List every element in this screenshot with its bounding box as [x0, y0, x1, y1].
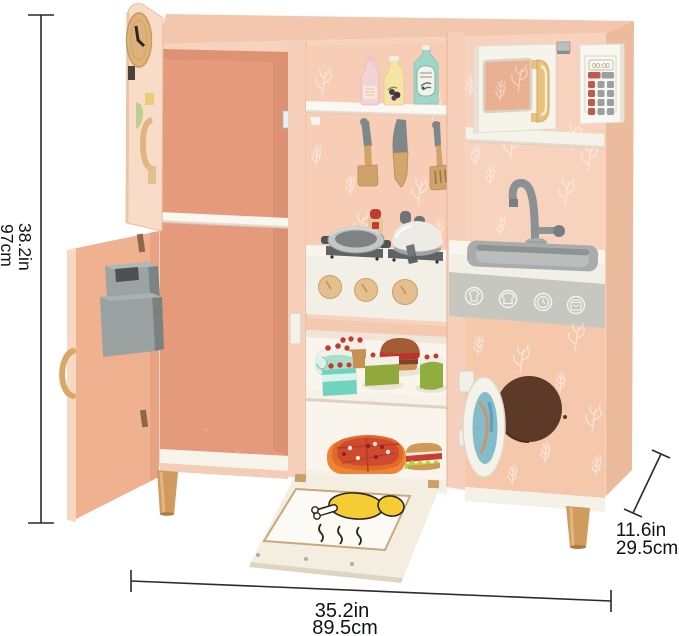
svg-text:29.5cm: 29.5cm: [616, 538, 678, 559]
svg-text:89.5cm: 89.5cm: [312, 617, 378, 636]
svg-text:38.2in97cm: 38.2in97cm: [0, 223, 35, 271]
svg-text:00:00: 00:00: [592, 63, 610, 70]
